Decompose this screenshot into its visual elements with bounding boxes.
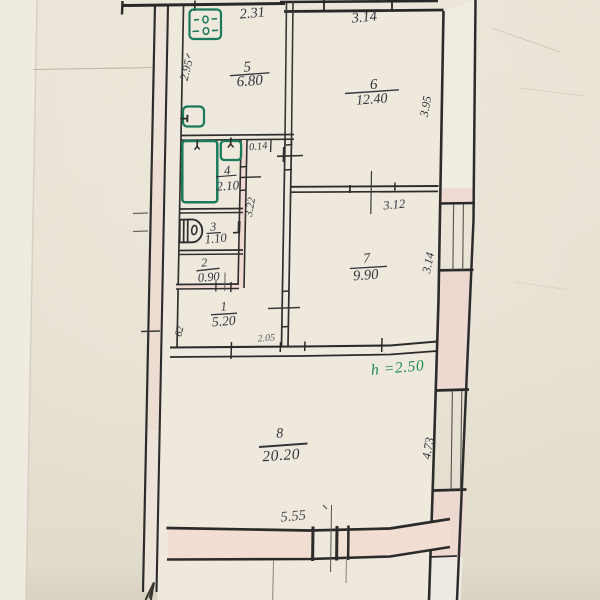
- svg-text:8: 8: [276, 426, 284, 441]
- svg-text:0.90: 0.90: [197, 269, 221, 285]
- svg-text:2: 2: [201, 255, 208, 269]
- svg-text:6.80: 6.80: [236, 73, 264, 91]
- svg-text:2.05: 2.05: [257, 332, 275, 344]
- svg-text:3.12: 3.12: [382, 197, 406, 213]
- svg-text:3.14: 3.14: [350, 8, 378, 26]
- svg-text:2.31: 2.31: [239, 4, 266, 22]
- svg-text:5.20: 5.20: [211, 313, 236, 330]
- svg-text:0.14: 0.14: [249, 140, 269, 153]
- svg-text:12.40: 12.40: [356, 91, 388, 108]
- svg-text:9.90: 9.90: [353, 267, 380, 285]
- svg-text:2.10: 2.10: [216, 177, 240, 194]
- svg-text:1.10: 1.10: [204, 231, 228, 247]
- svg-text:5.55: 5.55: [280, 507, 307, 525]
- svg-text:1: 1: [220, 298, 228, 313]
- svg-text:20.20: 20.20: [262, 446, 301, 466]
